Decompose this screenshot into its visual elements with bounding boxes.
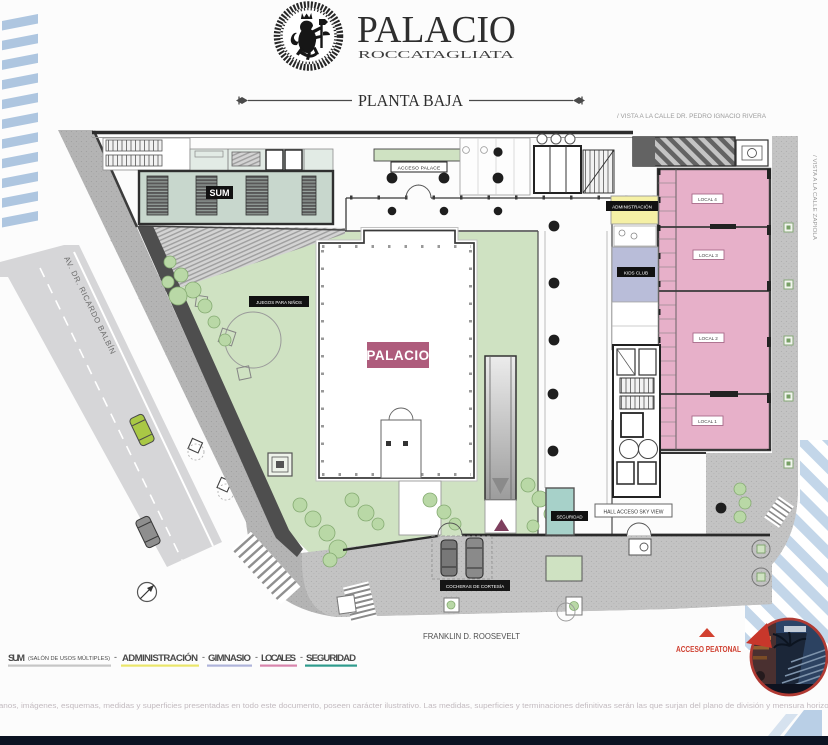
svg-text:ADMINISTRACIÓN: ADMINISTRACIÓN (122, 652, 198, 664)
svg-text:COCHERAS DE CORTESÍA: COCHERAS DE CORTESÍA (446, 583, 505, 589)
svg-text:SUM: SUM (210, 188, 230, 198)
svg-text:(SALÓN DE USOS MÚLTIPLES): (SALÓN DE USOS MÚLTIPLES) (28, 655, 110, 662)
svg-text:SEGURIDAD: SEGURIDAD (556, 515, 582, 520)
svg-text:ADMINISTRACIÓN: ADMINISTRACIÓN (612, 204, 652, 210)
svg-text:PALACIO: PALACIO (366, 348, 429, 363)
svg-text:PLANTA BAJA: PLANTA BAJA (358, 91, 463, 110)
svg-text:LOCAL 3: LOCAL 3 (699, 253, 718, 258)
svg-text:ACCESO PEATONAL: ACCESO PEATONAL (676, 645, 741, 654)
svg-text:LOCALES: LOCALES (261, 653, 297, 664)
svg-text:s planos, imágenes, esquemas,: s planos, imágenes, esquemas, medidas y … (0, 701, 828, 710)
svg-text:SUM: SUM (8, 653, 25, 664)
svg-text:/ VISTA A LA CALLE DR. PEDRO I: / VISTA A LA CALLE DR. PEDRO IGNACIO RIV… (617, 113, 767, 120)
svg-text:SEGURIDAD: SEGURIDAD (306, 653, 356, 664)
svg-text:ACCESO PALACE: ACCESO PALACE (398, 166, 441, 172)
svg-text:PALACIO: PALACIO (357, 9, 516, 51)
svg-text:KIDS CLUB: KIDS CLUB (624, 271, 648, 276)
svg-text:LOCAL 2: LOCAL 2 (699, 336, 718, 341)
svg-text:-: - (300, 652, 303, 662)
svg-text:-: - (114, 652, 117, 662)
svg-text:JUEGOS PARA NIÑOS: JUEGOS PARA NIÑOS (256, 300, 302, 305)
svg-text:/ VISTA A LA CALLE ZAPIOLA: / VISTA A LA CALLE ZAPIOLA (811, 155, 817, 240)
svg-text:LOCAL 4: LOCAL 4 (698, 197, 717, 202)
svg-text:ROCCATAGLIATA: ROCCATAGLIATA (358, 50, 515, 61)
svg-text:HALL ACCESO SKY VIEW: HALL ACCESO SKY VIEW (603, 510, 663, 516)
svg-text:FRANKLIN D. ROOSEVELT: FRANKLIN D. ROOSEVELT (423, 631, 520, 641)
svg-text:-: - (202, 652, 205, 662)
svg-text:-: - (255, 652, 258, 662)
svg-text:LOCAL 1: LOCAL 1 (698, 419, 717, 424)
svg-text:GIMNASIO: GIMNASIO (208, 653, 252, 664)
